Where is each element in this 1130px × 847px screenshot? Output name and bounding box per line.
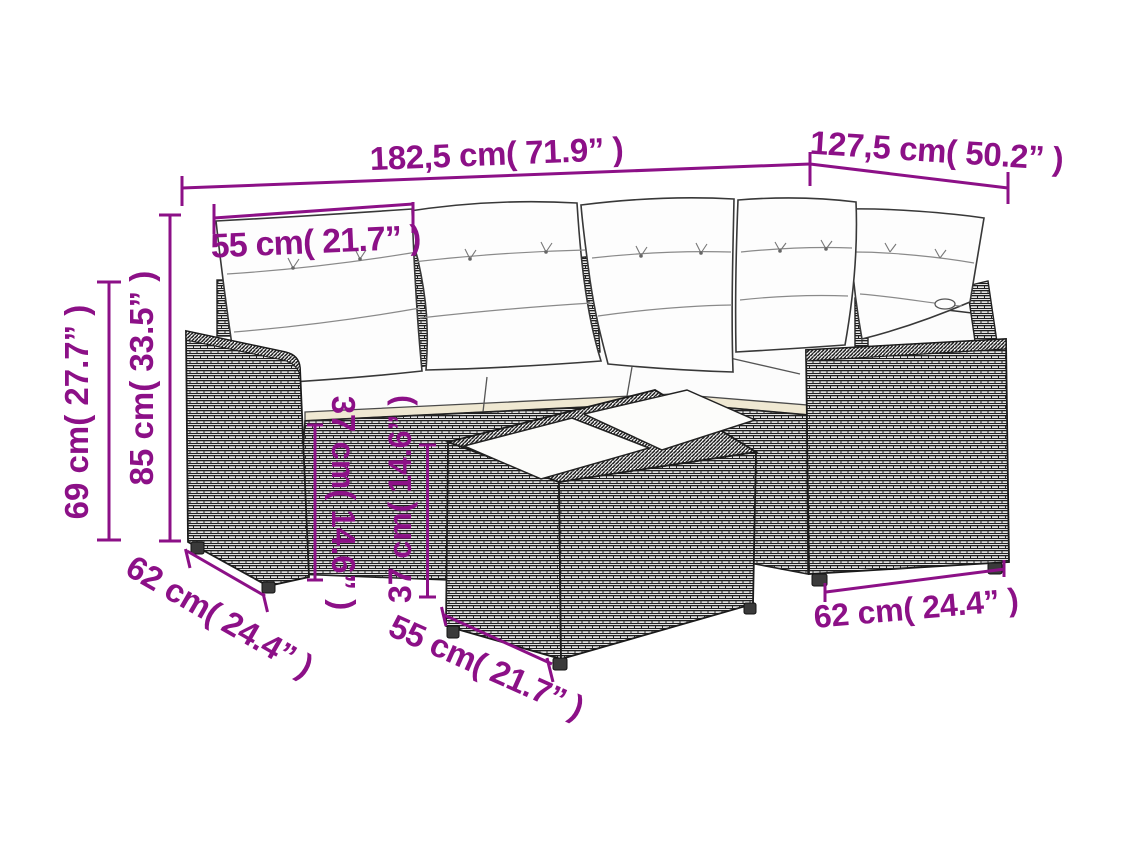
svg-text:37 cm( 14.6” ): 37 cm( 14.6” )	[325, 396, 362, 611]
svg-text:85 cm( 33.5” ): 85 cm( 33.5” )	[123, 271, 160, 486]
svg-text:37 cm( 14.6” ): 37 cm( 14.6” )	[382, 395, 418, 603]
svg-text:69 cm( 27.7” ): 69 cm( 27.7” )	[58, 305, 95, 520]
